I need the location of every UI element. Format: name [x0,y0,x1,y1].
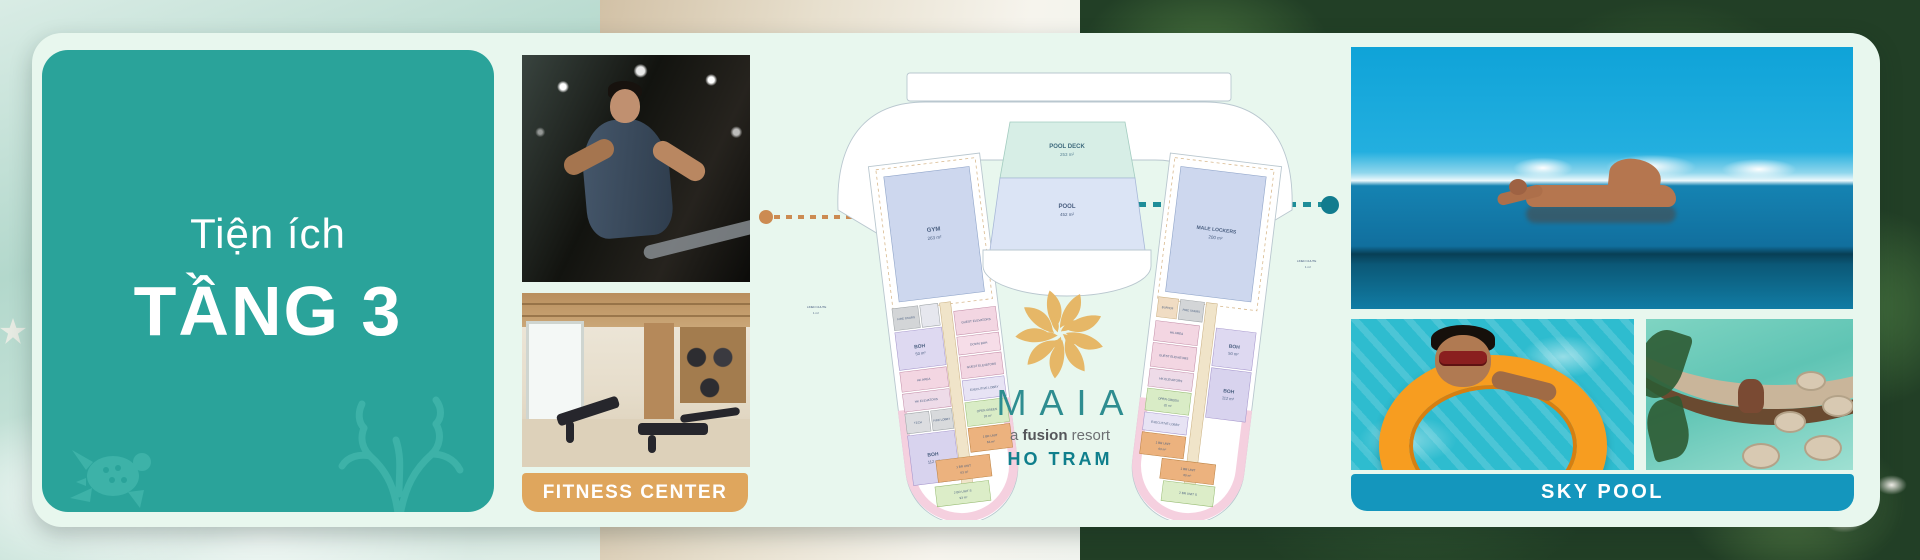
photo-skypool-main [1351,47,1853,309]
svg-text:1 m²: 1 m² [1305,265,1311,269]
tagline-post: resort [1072,427,1110,444]
svg-text:1 m²: 1 m² [813,311,819,315]
plan-top-bar [907,73,1231,101]
svg-text:POOL DECK: POOL DECK [1049,144,1085,150]
bench-leg [648,435,656,453]
pool-stool [1796,371,1826,391]
reflection [1526,205,1676,223]
photo-fitness-treadmill [522,55,750,282]
svg-text:452 m²: 452 m² [1060,212,1075,217]
pool-stool [1742,443,1780,469]
bench-leg [566,421,574,443]
pool-stool [1822,395,1853,417]
sunbather-head [1509,179,1527,195]
photo-skypool-kid [1351,319,1634,470]
pool-stool [1774,411,1806,433]
svg-text:POOL: POOL [1058,204,1075,210]
wood-column [644,323,674,419]
maia-tagline: a fusion resort [1010,427,1110,444]
swimmer [1738,379,1764,413]
sky-pool-label: SKY POOL [1541,481,1664,504]
equipment-shelf [680,327,746,403]
turtle-icon [58,424,168,512]
connector-dot-fitness [759,210,773,224]
workout-bench [638,423,708,435]
brochure-page: Tiện ích TẦNG 3 [0,0,1920,560]
photo-fitness-gym [522,293,750,467]
floor [522,419,750,467]
svg-text:LINEN CHUTE: LINEN CHUTE [1297,259,1316,263]
svg-text:253 m²: 253 m² [1060,152,1075,157]
plan-pool-deck [1000,122,1135,178]
fitness-center-banner: FITNESS CENTER [522,473,748,512]
pool-stool [1804,435,1842,461]
ceiling-beam [522,303,750,305]
floor-title-card: Tiện ích TẦNG 3 [42,50,494,512]
floor-title-small: Tiện ích [190,211,346,257]
maia-flower-icon [1014,288,1106,380]
maia-brand: MAIA [996,382,1136,424]
ceiling-beam [522,315,750,317]
floor-title-big: TẦNG 3 [134,271,403,351]
svg-text:LINEN CHUTE: LINEN CHUTE [807,305,826,309]
sky-pool-banner: SKY POOL [1351,474,1854,511]
photo-skypool-bar [1646,319,1853,470]
sunglasses [1439,351,1487,364]
fitness-center-label: FITNESS CENTER [543,482,728,504]
coral-icon [324,394,474,512]
tagline-pre: a [1010,427,1018,444]
maia-logo: MAIA a fusion resort HO TRAM [957,288,1163,474]
maia-location: HO TRAM [1008,449,1113,470]
runner-head [610,89,640,123]
tagline-bold: fusion [1023,427,1068,444]
